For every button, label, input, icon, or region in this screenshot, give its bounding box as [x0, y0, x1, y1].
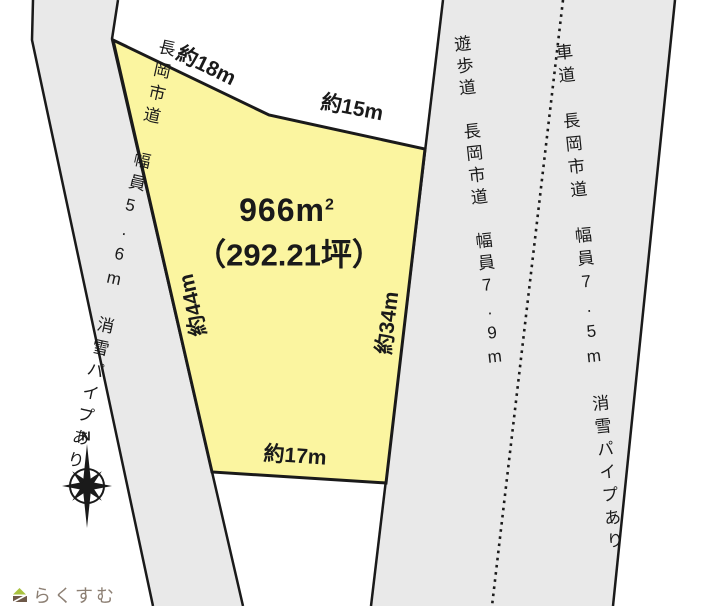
plot-area-superscript: 2: [325, 196, 335, 213]
watermark-text: らくすむ: [33, 582, 117, 606]
plot-area-label: 966m2: [239, 194, 335, 226]
dimension-bottom-label: 約17m: [263, 443, 327, 468]
main-road-shape: [371, 0, 675, 606]
watermark-logo-icon: [12, 587, 28, 603]
plot-area-value: 966m: [239, 192, 325, 228]
plot-area-tsubo-label: （292.21坪）: [195, 240, 383, 271]
compass-north-label: N: [81, 430, 90, 443]
watermark: らくすむ: [12, 582, 117, 606]
land-plot-diagram: 長岡市道 幅員5.6m 消雪パイプあり 遊歩道 長岡市道 幅員7.9m 車道 長…: [0, 0, 728, 606]
